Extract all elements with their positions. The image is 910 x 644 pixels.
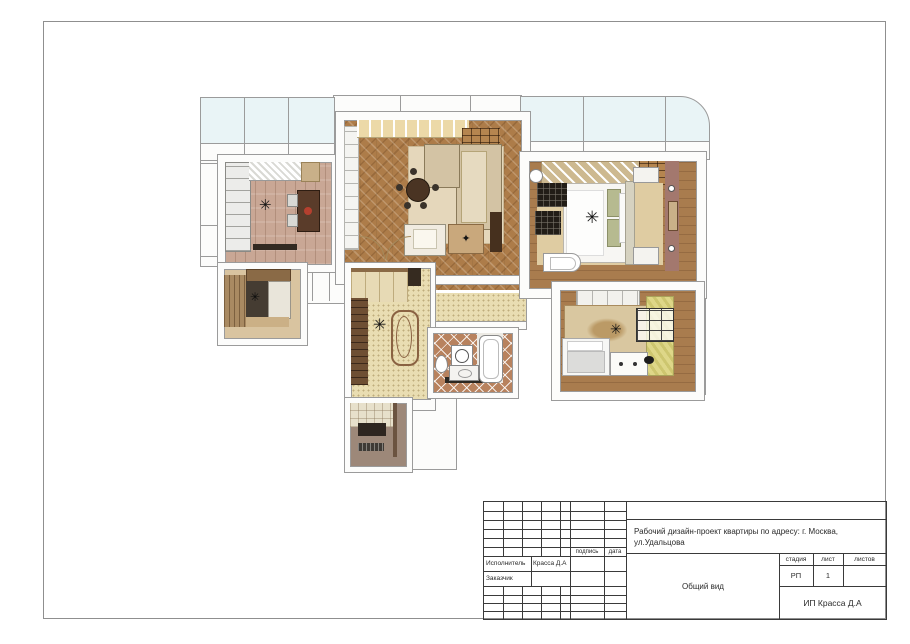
- kids-bed: [562, 338, 610, 376]
- living-room: ✦: [336, 112, 530, 284]
- kitchen-bench: [253, 244, 297, 250]
- utility-cabinet: [224, 275, 246, 327]
- title-block: подпись дата Исполнитель Красса Д.А Зака…: [483, 501, 887, 620]
- utility-room: ✳: [218, 263, 307, 345]
- dark-object: [644, 356, 654, 364]
- tv-console: [490, 212, 502, 252]
- doormat: [358, 443, 384, 451]
- balcony-left-glazing: [200, 97, 335, 145]
- living-curtains: [357, 120, 469, 138]
- side-cabinet: ✦: [448, 224, 484, 254]
- kitchen-room: ✳: [218, 155, 339, 272]
- radiator-fin: [550, 257, 576, 270]
- nightstand: [633, 167, 659, 183]
- hall-wardrobe: [351, 298, 368, 385]
- grid-line: [503, 502, 504, 556]
- ottoman: [537, 183, 567, 207]
- grid-line: [522, 502, 523, 556]
- door-swing-arc: [386, 236, 411, 260]
- chandelier-icon: ✳: [585, 209, 599, 226]
- wall-segment-line: [200, 160, 218, 161]
- chandelier-icon: ✳: [259, 198, 272, 213]
- drawing-sheet: ✳ ✦: [0, 0, 910, 644]
- grid-line: [522, 586, 523, 619]
- kids-shelf-grid: [636, 308, 674, 342]
- grid-line: [503, 586, 504, 619]
- bathroom-room: [428, 328, 518, 398]
- sheets-value: [843, 565, 886, 586]
- sofa-chaise: [424, 144, 460, 188]
- armchair-seat: [413, 229, 437, 249]
- kitchen-chair: [287, 194, 298, 207]
- client-label: Заказчик: [484, 571, 533, 586]
- chandelier-icon: ✳: [610, 322, 622, 336]
- dresser-knob: [633, 362, 637, 366]
- hallway-room: ✳: [345, 263, 435, 410]
- washer-drum: [455, 349, 469, 363]
- dining-chair: [410, 168, 417, 175]
- utility-floor: [246, 317, 289, 327]
- sofa-seat: [461, 151, 487, 223]
- signature-label: подпись: [570, 547, 604, 556]
- kids-pillow: [567, 341, 603, 351]
- executor-name: Красса Д.А: [531, 556, 572, 571]
- kitchen-corner-cabinet: [301, 162, 320, 182]
- hall-console: [391, 310, 419, 366]
- plant-icon: ✦: [461, 234, 470, 245]
- window-mullion: [244, 97, 245, 162]
- kitchen-window-blinds: [249, 162, 301, 181]
- kids-room: ✳: [552, 282, 704, 400]
- bedroom-room: ✳: [520, 152, 706, 298]
- nightstand: [633, 247, 659, 265]
- entry-wall-strip: [393, 403, 397, 457]
- sink-bowl: [458, 369, 472, 378]
- dining-chair: [396, 184, 403, 191]
- grid-line: [541, 502, 542, 556]
- dining-chair: [432, 184, 439, 191]
- hall-cabinets: [351, 268, 408, 302]
- grid-line: [560, 586, 561, 619]
- window-mullion: [665, 96, 666, 158]
- hall-dark-box: [408, 268, 421, 286]
- ceiling-fan: [529, 169, 543, 183]
- office-chair-icon: ✳: [250, 291, 260, 303]
- utility-desk: [268, 281, 291, 319]
- sconce: [668, 245, 675, 252]
- door-swing-arc: [360, 236, 385, 260]
- grid-line: [541, 586, 542, 619]
- grid-line: [560, 502, 561, 556]
- wall-segment-line: [200, 225, 218, 226]
- executor-label: Исполнитель: [484, 556, 533, 571]
- grid-line: [604, 502, 605, 619]
- company-name: ИП Красса Д.А: [779, 586, 886, 619]
- washing-machine: [451, 345, 473, 367]
- sconce: [668, 185, 675, 192]
- bathtub: [479, 335, 503, 383]
- living-shelving: [344, 126, 359, 250]
- utility-niche: ✳: [246, 281, 268, 317]
- table-plate: [304, 207, 312, 215]
- wall-art: [668, 201, 678, 231]
- kitchen-dining-table: [297, 190, 320, 232]
- dresser-knob: [619, 362, 623, 366]
- dining-chair: [404, 202, 411, 209]
- chandelier-icon: ✳: [373, 318, 386, 334]
- sheet-label: лист: [813, 553, 843, 565]
- dining-chair: [420, 202, 427, 209]
- kitchen-cabinets: [225, 162, 251, 252]
- ottoman: [535, 211, 561, 235]
- corridor-wardrobe: [425, 290, 527, 322]
- sink-vanity: [449, 365, 479, 381]
- console-mirror: [396, 316, 412, 358]
- date-label: дата: [604, 547, 626, 556]
- entry-room: [345, 398, 412, 472]
- kids-dresser: [610, 352, 648, 376]
- radiator: [543, 253, 581, 272]
- entry-bench: [358, 423, 386, 436]
- toilet: [435, 355, 448, 373]
- stage-value: РП: [779, 565, 813, 586]
- window-mullion: [583, 96, 584, 158]
- window-mullion: [288, 97, 289, 162]
- sheets-label: листов: [843, 553, 886, 565]
- sheet-value: 1: [813, 565, 843, 586]
- dining-table: [406, 178, 430, 202]
- project-title: Рабочий дизайн-проект квартиры по адресу…: [632, 520, 882, 553]
- view-label: Общий вид: [627, 554, 779, 619]
- stage-label: стадия: [779, 553, 813, 565]
- bathtub-inner: [483, 339, 499, 379]
- kids-blanket: [567, 351, 605, 373]
- balcony-right-glazing: [520, 96, 710, 143]
- kitchen-chair: [287, 214, 298, 227]
